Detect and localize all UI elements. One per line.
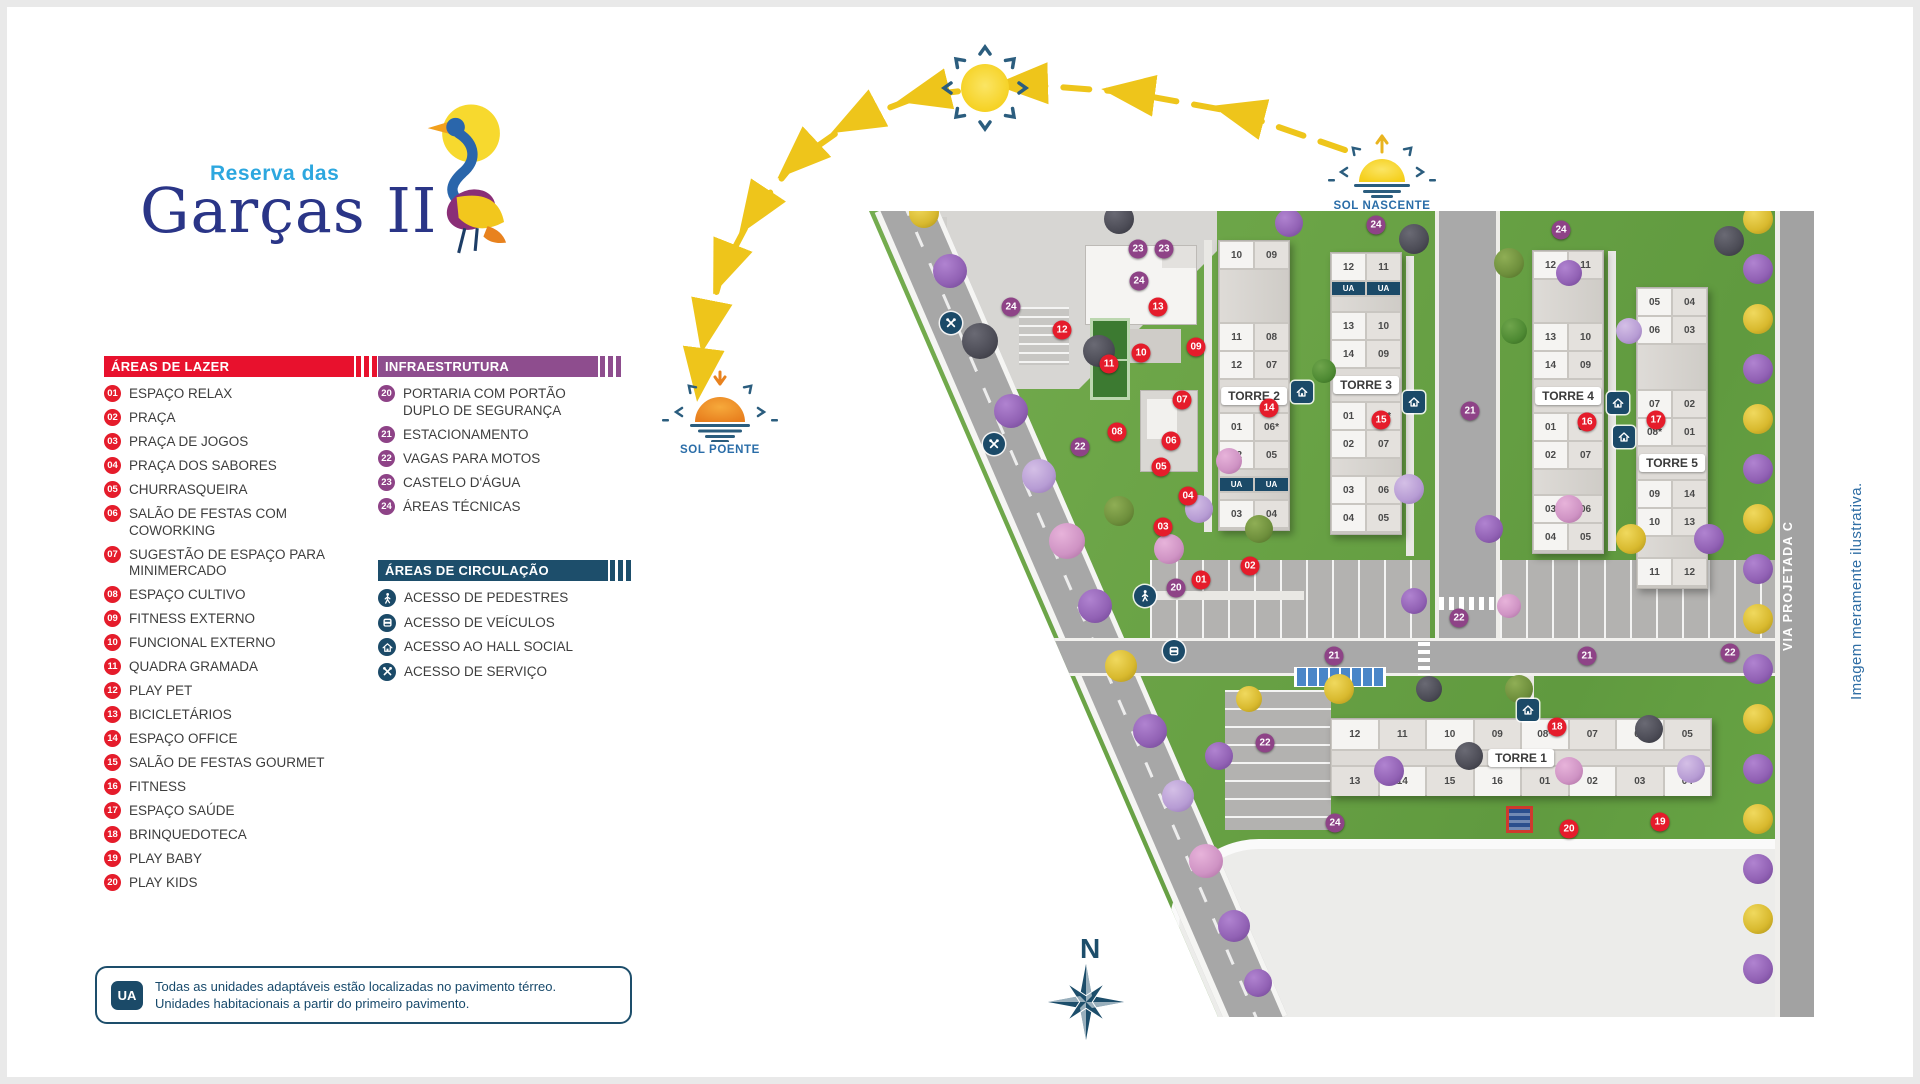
legend-item: 06SALÃO DE FESTAS COM COWORKING	[104, 505, 354, 539]
map-marker-10: 10	[1132, 344, 1151, 363]
tower-spacer	[1332, 459, 1400, 475]
legend-item-label: ESTACIONAMENTO	[403, 426, 529, 444]
tree	[1743, 354, 1773, 384]
legend-item: 02PRAÇA	[104, 409, 354, 427]
tower-torre-2: 100911081207TORRE 20106*0205UAUA0304	[1218, 240, 1290, 531]
car-access-icon	[1163, 640, 1185, 662]
ua-badge: UA	[111, 981, 143, 1010]
tower-label: TORRE 3	[1333, 376, 1399, 394]
unit-cell: 09	[1255, 242, 1288, 268]
legend-item-number: 13	[104, 706, 121, 723]
car-icon	[378, 614, 396, 632]
unit-cell: 02	[1332, 431, 1365, 457]
unit-cell: 08	[1255, 324, 1288, 350]
legend-item-number: 05	[104, 481, 121, 498]
legend-item: 20PLAY KIDS	[104, 874, 354, 892]
compass-rose: N	[1040, 932, 1132, 1044]
note-text: Todas as unidades adaptáveis estão local…	[155, 978, 556, 1012]
tree	[1216, 448, 1242, 474]
legend-item-label: PLAY KIDS	[129, 874, 198, 892]
tower-unit-row: 1409	[1534, 352, 1602, 378]
walk-icon	[378, 589, 396, 607]
legend-item-label: PRAÇA DE JOGOS	[129, 433, 248, 451]
legend-lazer: ÁREAS DE LAZER 01ESPAÇO RELAX02PRAÇA03PR…	[104, 356, 354, 898]
tree	[1743, 904, 1773, 934]
unit-cell: 02	[1673, 391, 1706, 417]
tree	[1555, 757, 1583, 785]
tower-spacer	[1220, 270, 1288, 322]
legend-item: 10FUNCIONAL EXTERNO	[104, 634, 354, 652]
tree	[962, 323, 998, 359]
legend-item-number: 16	[104, 778, 121, 795]
unit-cell: 01	[1673, 419, 1706, 445]
tree	[1236, 686, 1262, 712]
legend-item-label: BICICLETÁRIOS	[129, 706, 232, 724]
tree	[1022, 459, 1056, 493]
tree	[1078, 589, 1112, 623]
legend-item: 19PLAY BABY	[104, 850, 354, 868]
map-marker-08: 08	[1108, 423, 1127, 442]
unit-cell: 12	[1673, 559, 1706, 585]
legend-item-number: 10	[104, 634, 121, 651]
legend-item-label: VAGAS PARA MOTOS	[403, 450, 540, 468]
legend-item-label: CASTELO D'ÁGUA	[403, 474, 520, 492]
tower-unit-row: 0207	[1332, 431, 1400, 457]
legend-item-label: CHURRASQUEIRA	[129, 481, 248, 499]
tree	[1394, 474, 1424, 504]
tree	[1416, 676, 1442, 702]
tower-unit-row: 1310	[1534, 324, 1602, 350]
header-stripes	[600, 356, 624, 377]
tree	[1401, 588, 1427, 614]
map-marker-06: 06	[1162, 432, 1181, 451]
unit-cell: 13	[1534, 324, 1567, 350]
legend-item-label: PRAÇA DOS SABORES	[129, 457, 277, 475]
legend-item-label: ACESSO DE PEDESTRES	[404, 589, 568, 607]
legend-item-label: ESPAÇO SAÚDE	[129, 802, 235, 820]
tree	[1616, 318, 1642, 344]
unit-cell: 09	[1638, 481, 1671, 507]
walkway	[1204, 240, 1212, 532]
legend-item-number: 24	[378, 498, 395, 515]
legend-item: 18BRINQUEDOTECA	[104, 826, 354, 844]
legend-item-label: PLAY BABY	[129, 850, 202, 868]
header-stripes	[610, 560, 634, 581]
tower-unit-row: 0306	[1332, 477, 1400, 503]
road-a-label: VIA PROJETADA A	[886, 579, 948, 704]
map-marker-09: 09	[1187, 338, 1206, 357]
map-marker-21: 21	[1325, 647, 1344, 666]
map-marker-04: 04	[1179, 487, 1198, 506]
unit-cell: 11	[1638, 559, 1671, 585]
unit-cell: 11	[1220, 324, 1253, 350]
tree	[1218, 910, 1250, 942]
legend-item-label: PORTARIA COM PORTÃO DUPLO DE SEGURANÇA	[403, 385, 598, 419]
map-marker-15: 15	[1372, 411, 1391, 430]
map-marker-24: 24	[1002, 298, 1021, 317]
legend-item: 03PRAÇA DE JOGOS	[104, 433, 354, 451]
tower-spacer	[1534, 470, 1602, 494]
unit-cell: 11	[1367, 254, 1400, 280]
legend-item: 16FITNESS	[104, 778, 354, 796]
tree	[1743, 254, 1773, 284]
map-marker-22: 22	[1071, 438, 1090, 457]
legend-item-label: SALÃO DE FESTAS COM COWORKING	[129, 505, 354, 539]
legend-item-label: FITNESS	[129, 778, 186, 796]
tree	[1494, 248, 1524, 278]
tower-unit-row: UAUA	[1220, 478, 1288, 491]
legend-item: 15SALÃO DE FESTAS GOURMET	[104, 754, 354, 772]
tree	[1694, 524, 1724, 554]
tower-spacer	[1332, 297, 1400, 311]
tower-torre-3: 1211UAUA13101409TORRE 30108*020703060405	[1330, 252, 1402, 535]
tree	[1374, 756, 1404, 786]
legend-item-number: 23	[378, 474, 395, 491]
legend-item-number: 04	[104, 457, 121, 474]
logo: Reserva das Garças II	[118, 90, 518, 260]
tree	[1049, 523, 1085, 559]
tree	[1743, 804, 1773, 834]
unit-cell: 05	[1255, 442, 1288, 468]
unit-cell: 14	[1534, 352, 1567, 378]
tree	[909, 198, 939, 228]
unit-cell: 02	[1534, 442, 1567, 468]
legend-item: 11QUADRA GRAMADA	[104, 658, 354, 676]
playground-icon	[1506, 806, 1533, 833]
map-marker-23: 23	[1155, 240, 1174, 259]
unit-cell: 07	[1255, 352, 1288, 378]
adaptable-units-note: UA Todas as unidades adaptáveis estão lo…	[95, 966, 632, 1024]
map-marker-21: 21	[1461, 402, 1480, 421]
unit-cell: 14	[1332, 341, 1365, 367]
map-marker-02: 02	[1241, 557, 1260, 576]
unit-cell: 01	[1220, 414, 1253, 440]
ua-unit-cell: UA	[1220, 478, 1253, 491]
legend-item-number: 08	[104, 586, 121, 603]
unit-cell: 10	[1569, 324, 1602, 350]
legend-item: 21ESTACIONAMENTO	[378, 426, 598, 444]
ua-unit-cell: UA	[1255, 478, 1288, 491]
tower-label: TORRE 1	[1488, 749, 1554, 767]
legend-item-label: QUADRA GRAMADA	[129, 658, 258, 676]
unit-cell: 03	[1332, 477, 1365, 503]
tree	[1743, 604, 1773, 634]
unit-cell: 05	[1665, 720, 1711, 749]
note-line-2: Unidades habitacionais a partir do prime…	[155, 995, 556, 1012]
unit-cell: 12	[1332, 254, 1365, 280]
tree	[1714, 226, 1744, 256]
legend-item: 17ESPAÇO SAÚDE	[104, 802, 354, 820]
legend-item: 23CASTELO D'ÁGUA	[378, 474, 598, 492]
tree	[1105, 650, 1137, 682]
hall-access-icon	[1607, 392, 1629, 414]
legend-item-label: ESPAÇO RELAX	[129, 385, 232, 403]
legend-item-number: 22	[378, 450, 395, 467]
map-marker-19: 19	[1651, 813, 1670, 832]
tree	[1743, 654, 1773, 684]
legend-item-number: 19	[104, 850, 121, 867]
service-icon	[378, 663, 396, 681]
legend-item: 20PORTARIA COM PORTÃO DUPLO DE SEGURANÇA	[378, 385, 598, 419]
tower-unit-row: 1108	[1220, 324, 1288, 350]
map-marker-11: 11	[1100, 355, 1119, 374]
tower-unit-row: 1009	[1220, 242, 1288, 268]
map-marker-03: 03	[1154, 518, 1173, 537]
unit-cell: 12	[1332, 720, 1378, 749]
legend-item-number: 09	[104, 610, 121, 627]
tree	[1556, 260, 1582, 286]
tower-unit-row: 0405	[1332, 505, 1400, 531]
legend-item-label: SUGESTÃO DE ESPAÇO PARA MINIMERCADO	[129, 546, 354, 580]
legend-item-number: 15	[104, 754, 121, 771]
legend-item: 22VAGAS PARA MOTOS	[378, 450, 598, 468]
tree	[1205, 742, 1233, 770]
unit-cell: 03	[1673, 317, 1706, 343]
compass-n-label: N	[1080, 933, 1100, 964]
tower-label-zone: TORRE 4	[1534, 380, 1602, 412]
unit-cell: 07	[1367, 431, 1400, 457]
legend-item-number: 18	[104, 826, 121, 843]
tree	[1475, 515, 1503, 543]
tree	[1743, 504, 1773, 534]
legend-item: ACESSO AO HALL SOCIAL	[378, 638, 608, 656]
unit-cell: 04	[1534, 524, 1567, 550]
legend-item: 07SUGESTÃO DE ESPAÇO PARA MINIMERCADO	[104, 546, 354, 580]
legend-item: 01ESPAÇO RELAX	[104, 385, 354, 403]
unit-cell: 06*	[1255, 414, 1288, 440]
legend-item-label: FUNCIONAL EXTERNO	[129, 634, 276, 652]
tree	[1743, 554, 1773, 584]
legend-item: 08ESPAÇO CULTIVO	[104, 586, 354, 604]
map-marker-16: 16	[1578, 413, 1597, 432]
unit-cell: 05	[1638, 289, 1671, 315]
tree	[1104, 204, 1134, 234]
tower-unit-row: UAUA	[1332, 282, 1400, 295]
tower-unit-row: 1112	[1638, 559, 1706, 585]
unit-cell: 04	[1673, 289, 1706, 315]
service-access-icon	[983, 433, 1005, 455]
tree	[1555, 495, 1583, 523]
map-marker-20: 20	[1167, 579, 1186, 598]
legend-item-label: ESPAÇO OFFICE	[129, 730, 238, 748]
legend-item-number: 01	[104, 385, 121, 402]
legend-item: 09FITNESS EXTERNO	[104, 610, 354, 628]
unit-cell: 04	[1332, 505, 1365, 531]
tree	[1743, 954, 1773, 984]
sun-icon	[944, 47, 1026, 129]
tree	[1133, 714, 1167, 748]
unit-cell: 15	[1427, 767, 1473, 796]
legend-item-number: 21	[378, 426, 395, 443]
tree	[1743, 304, 1773, 334]
tree	[1501, 318, 1527, 344]
legend-item: ACESSO DE PEDESTRES	[378, 589, 608, 607]
legend-infra: INFRAESTRUTURA 20PORTARIA COM PORTÃO DUP…	[378, 356, 598, 522]
tower-unit-row: 0603	[1638, 317, 1706, 343]
unit-cell: 13	[1332, 767, 1378, 796]
legend-item: 24ÁREAS TÉCNICAS	[378, 498, 598, 516]
tower-unit-row: 0914	[1638, 481, 1706, 507]
tree	[1399, 224, 1429, 254]
header-stripes	[356, 356, 380, 377]
tower-label-zone: TORRE 3	[1332, 369, 1400, 401]
sol-poente-icon	[655, 364, 785, 442]
unit-cell: 09	[1569, 352, 1602, 378]
legend-circulacao-title-text: ÁREAS DE CIRCULAÇÃO	[385, 563, 549, 578]
tower-unit-row: 0504	[1638, 289, 1706, 315]
unit-cell: 01	[1332, 403, 1365, 429]
tree	[994, 394, 1028, 428]
tree	[1455, 742, 1483, 770]
tower-unit-row: 0207	[1534, 442, 1602, 468]
legend-item-label: ÁREAS TÉCNICAS	[403, 498, 521, 516]
legend-item-number: 14	[104, 730, 121, 747]
legend-item: 14ESPAÇO OFFICE	[104, 730, 354, 748]
legend-infra-list: 20PORTARIA COM PORTÃO DUPLO DE SEGURANÇA…	[378, 385, 598, 515]
hall-access-icon	[1403, 391, 1425, 413]
unit-cell: 07	[1569, 442, 1602, 468]
ua-unit-cell: UA	[1332, 282, 1365, 295]
tree	[1743, 704, 1773, 734]
legend-lazer-list: 01ESPAÇO RELAX02PRAÇA03PRAÇA DE JOGOS04P…	[104, 385, 354, 892]
road-c-label: VIA PROJETADA C	[1781, 481, 1795, 651]
service-access-icon	[940, 312, 962, 334]
legend-item: ACESSO DE VEÍCULOS	[378, 614, 608, 632]
tower-unit-row: 0405	[1534, 524, 1602, 550]
unit-cell: 05	[1569, 524, 1602, 550]
map-marker-17: 17	[1647, 411, 1666, 430]
legend-item-number: 07	[104, 546, 121, 563]
sol-nascente-icon	[1322, 126, 1442, 198]
unit-cell: 09	[1367, 341, 1400, 367]
walk-access-icon	[1134, 585, 1156, 607]
disclaimer-text: Imagem meramente ilustrativa.	[1848, 370, 1865, 700]
legend-item-label: SALÃO DE FESTAS GOURMET	[129, 754, 325, 772]
map-marker-22: 22	[1256, 734, 1275, 753]
legend-item-label: BRINQUEDOTECA	[129, 826, 247, 844]
unit-cell: 11	[1380, 720, 1426, 749]
hall-access-icon	[1613, 426, 1635, 448]
tree	[1743, 854, 1773, 884]
tower-label: TORRE 5	[1639, 454, 1705, 472]
legend-item-number: 20	[104, 874, 121, 891]
tree	[933, 254, 967, 288]
map-marker-24: 24	[1130, 272, 1149, 291]
tree	[1189, 844, 1223, 878]
map-marker-24: 24	[1367, 216, 1386, 235]
tree	[1162, 780, 1194, 812]
map-marker-14: 14	[1260, 399, 1279, 418]
sol-poente-label: SOL POENTE	[655, 444, 785, 456]
legend-item: 12PLAY PET	[104, 682, 354, 700]
legend-circulacao-title: ÁREAS DE CIRCULAÇÃO	[378, 560, 608, 581]
map-marker-24: 24	[1552, 221, 1571, 240]
tree	[1312, 359, 1336, 383]
site-plan-map: VIA PROJETADA A VIA PROJETADA C 12111009…	[869, 211, 1814, 1017]
map-marker-22: 22	[1450, 609, 1469, 628]
tree	[1677, 755, 1705, 783]
logo-name: Garças II	[140, 174, 437, 247]
internal-road-central	[1435, 211, 1500, 658]
legend-item: 05CHURRASQUEIRA	[104, 481, 354, 499]
tower-unit-row: 0106*	[1220, 414, 1288, 440]
tree	[1743, 754, 1773, 784]
map-marker-12: 12	[1053, 321, 1072, 340]
legend-item-number: 06	[104, 505, 121, 522]
tree	[1743, 454, 1773, 484]
map-marker-07: 07	[1173, 391, 1192, 410]
legend-item-number: 02	[104, 409, 121, 426]
tree	[1324, 674, 1354, 704]
ua-unit-cell: UA	[1367, 282, 1400, 295]
page: Reserva das Garças II ÁREAS DE LAZER 01E…	[0, 0, 1920, 1084]
legend-item-label: FITNESS EXTERNO	[129, 610, 255, 628]
legend-lazer-title: ÁREAS DE LAZER	[104, 356, 354, 377]
legend-item-label: PLAY PET	[129, 682, 192, 700]
unit-cell: 09	[1475, 720, 1521, 749]
unit-cell: 10	[1367, 313, 1400, 339]
tower-spacer	[1534, 280, 1602, 322]
legend-item-number: 03	[104, 433, 121, 450]
tree	[1743, 204, 1773, 234]
unit-cell: 06	[1638, 317, 1671, 343]
legend-infra-title-text: INFRAESTRUTURA	[385, 359, 509, 374]
crosswalk	[1418, 642, 1430, 675]
unit-cell: 05	[1367, 505, 1400, 531]
tower-unit-row: 1211	[1332, 254, 1400, 280]
map-marker-24: 24	[1326, 814, 1345, 833]
unit-cell: 07	[1570, 720, 1616, 749]
legend-circulacao-list: ACESSO DE PEDESTRESACESSO DE VEÍCULOSACE…	[378, 589, 608, 681]
legend-item-label: ESPAÇO CULTIVO	[129, 586, 246, 604]
legend-item: 04PRAÇA DOS SABORES	[104, 457, 354, 475]
legend-item-number: 20	[378, 385, 395, 402]
heron-logo-icon	[396, 90, 511, 255]
map-marker-23: 23	[1129, 240, 1148, 259]
map-marker-21: 21	[1578, 647, 1597, 666]
tower-unit-row: 1310	[1332, 313, 1400, 339]
parking-lot-south	[1225, 690, 1331, 830]
legend-item-label: ACESSO DE VEÍCULOS	[404, 614, 555, 632]
legend-item: ACESSO DE SERVIÇO	[378, 663, 608, 681]
tree	[1743, 404, 1773, 434]
unit-cell: 10	[1220, 242, 1253, 268]
tower-label-zone: TORRE 5	[1638, 447, 1706, 479]
legend-item-label: ACESSO DE SERVIÇO	[404, 663, 547, 681]
legend-item-number: 17	[104, 802, 121, 819]
legend-lazer-title-text: ÁREAS DE LAZER	[111, 359, 229, 374]
map-marker-18: 18	[1548, 718, 1567, 737]
note-line-1: Todas as unidades adaptáveis estão local…	[155, 978, 556, 995]
map-marker-13: 13	[1149, 298, 1168, 317]
map-marker-05: 05	[1152, 458, 1171, 477]
legend-item: 13BICICLETÁRIOS	[104, 706, 354, 724]
tree	[1275, 209, 1303, 237]
unit-cell: 14	[1673, 481, 1706, 507]
hall-access-icon	[1517, 699, 1539, 721]
legend-infra-title: INFRAESTRUTURA	[378, 356, 598, 377]
tree	[1616, 524, 1646, 554]
tree	[1244, 969, 1272, 997]
map-marker-22: 22	[1721, 644, 1740, 663]
tower-unit-row: 1409	[1332, 341, 1400, 367]
tree	[1104, 496, 1134, 526]
tree	[1245, 515, 1273, 543]
legend-item-label: ACESSO AO HALL SOCIAL	[404, 638, 573, 656]
tree	[1497, 594, 1521, 618]
map-marker-20: 20	[1560, 820, 1579, 839]
crosswalk	[1439, 597, 1497, 610]
